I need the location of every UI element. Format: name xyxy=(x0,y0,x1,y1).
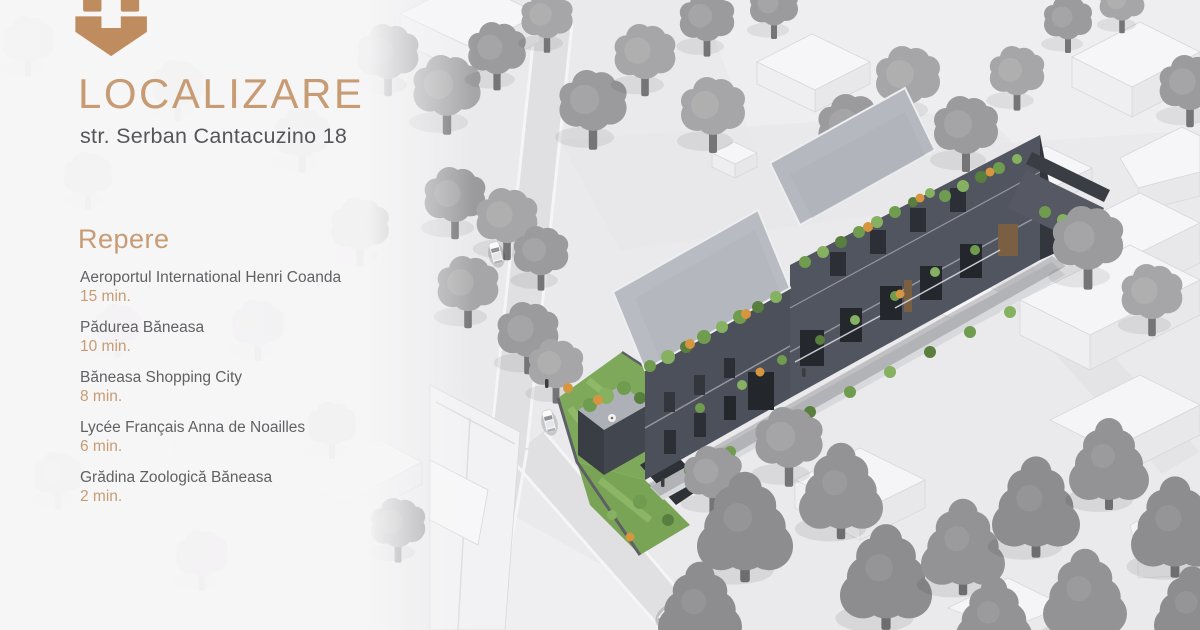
landmark-list: Aeroportul International Henri Coanda 15… xyxy=(80,268,420,518)
landmark-item: Băneasa Shopping City 8 min. xyxy=(80,368,420,406)
slide: LOCALIZARE str. Serban Cantacuzino 18 Re… xyxy=(0,0,1200,630)
landmark-time: 2 min. xyxy=(80,487,420,506)
address: str. Serban Cantacuzino 18 xyxy=(80,124,347,149)
landmark-time: 15 min. xyxy=(80,287,420,306)
landmark-time: 10 min. xyxy=(80,337,420,356)
landmark-name: Lycée Français Anna de Noailles xyxy=(80,418,420,437)
landmark-item: Pădurea Băneasa 10 min. xyxy=(80,318,420,356)
landmark-time: 6 min. xyxy=(80,437,420,456)
landmark-name: Grădina Zoologică Băneasa xyxy=(80,468,420,487)
landmark-item: Aeroportul International Henri Coanda 15… xyxy=(80,268,420,306)
landmark-name: Aeroportul International Henri Coanda xyxy=(80,268,420,287)
landmark-name: Băneasa Shopping City xyxy=(80,368,420,387)
landmark-time: 8 min. xyxy=(80,387,420,406)
landmark-name: Pădurea Băneasa xyxy=(80,318,420,337)
repere-heading: Repere xyxy=(78,224,170,255)
info-panel: LOCALIZARE str. Serban Cantacuzino 18 Re… xyxy=(0,0,470,630)
landmark-item: Grădina Zoologică Băneasa 2 min. xyxy=(80,468,420,506)
page-title: LOCALIZARE xyxy=(78,70,364,118)
landmark-item: Lycée Français Anna de Noailles 6 min. xyxy=(80,418,420,456)
h-arrow-down-logo-icon xyxy=(72,0,158,58)
